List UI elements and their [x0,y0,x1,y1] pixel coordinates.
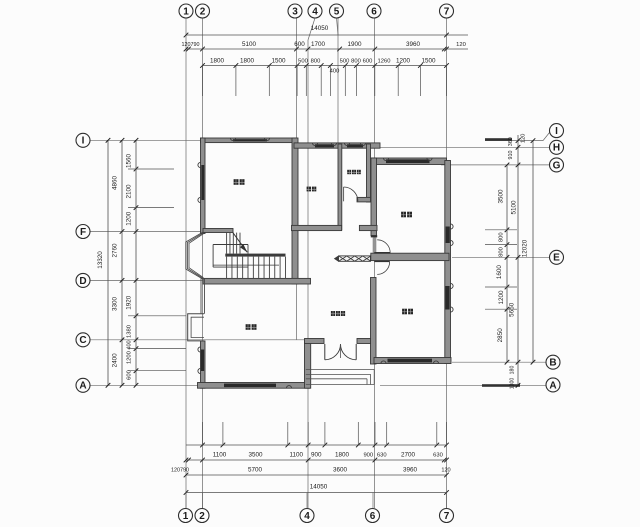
svg-text:14050: 14050 [311,25,329,32]
svg-text:800: 800 [311,59,321,65]
svg-text:3500: 3500 [498,189,505,204]
svg-text:5: 5 [334,6,340,17]
svg-text:4: 4 [312,6,318,17]
svg-text:400: 400 [127,340,133,349]
svg-text:600: 600 [294,41,305,48]
svg-text:1260: 1260 [378,59,391,65]
svg-text:4: 4 [304,511,310,522]
svg-text:1200: 1200 [127,351,133,364]
svg-text:600: 600 [363,59,373,65]
svg-text:180: 180 [510,366,516,375]
svg-text:3500: 3500 [248,452,263,459]
svg-text:600: 600 [127,370,133,380]
svg-text:1100: 1100 [213,452,227,459]
svg-text:6: 6 [371,6,377,17]
svg-text:7: 7 [444,6,450,17]
svg-text:5100: 5100 [511,200,518,215]
svg-text:A: A [79,381,86,392]
svg-text:1920: 1920 [126,295,133,310]
svg-text:E: E [553,253,560,264]
svg-text:1800: 1800 [240,58,255,65]
svg-text:120: 120 [456,42,466,48]
svg-text:1200: 1200 [498,290,505,305]
svg-text:630: 630 [433,453,443,459]
svg-text:2100: 2100 [126,184,133,199]
svg-text:2: 2 [200,6,206,17]
svg-text:1800: 1800 [335,452,350,459]
svg-text:360: 360 [508,137,514,146]
svg-text:1560: 1560 [126,154,133,169]
svg-text:5650: 5650 [509,302,516,317]
svg-text:6: 6 [370,511,376,522]
svg-text:500: 500 [340,59,350,65]
svg-text:I: I [82,136,85,147]
svg-text:2760: 2760 [112,243,119,258]
svg-text:2850: 2850 [497,328,504,343]
svg-text:1900: 1900 [347,41,362,48]
svg-text:120: 120 [441,468,450,474]
svg-text:4860: 4860 [112,176,119,191]
svg-text:3960: 3960 [403,467,418,474]
svg-text:1700: 1700 [311,41,326,48]
svg-text:500: 500 [298,59,308,65]
svg-text:900: 900 [311,452,322,459]
svg-text:120790: 120790 [182,42,200,48]
svg-text:C: C [79,335,86,346]
svg-text:1600: 1600 [496,265,503,280]
svg-text:3600: 3600 [333,467,348,474]
svg-text:1500: 1500 [421,58,436,65]
svg-text:3960: 3960 [406,41,421,48]
svg-text:800: 800 [499,247,505,257]
svg-text:630: 630 [377,453,387,459]
svg-text:800: 800 [499,232,505,242]
svg-text:2700: 2700 [401,452,416,459]
svg-text:5100: 5100 [242,41,257,48]
svg-text:400: 400 [330,69,340,75]
svg-text:3300: 3300 [112,297,119,312]
svg-text:1300: 1300 [510,378,516,390]
svg-text:D: D [79,276,86,287]
svg-text:7: 7 [444,511,450,522]
svg-text:1800: 1800 [210,58,225,65]
svg-text:910: 910 [508,151,514,160]
svg-text:2: 2 [199,511,205,522]
svg-text:1500: 1500 [271,58,286,65]
svg-text:1380: 1380 [127,325,133,338]
svg-text:120: 120 [521,134,527,143]
svg-text:B: B [549,358,556,369]
svg-text:A: A [549,380,556,391]
svg-text:900: 900 [363,453,373,459]
svg-text:G: G [553,160,561,171]
svg-text:5700: 5700 [248,467,263,474]
svg-text:1200: 1200 [126,211,133,226]
svg-text:I: I [555,126,558,137]
svg-text:2400: 2400 [112,353,119,368]
svg-text:1200: 1200 [396,58,411,65]
svg-text:1100: 1100 [290,452,304,459]
svg-text:14050: 14050 [310,484,328,491]
svg-text:1: 1 [183,6,189,17]
svg-text:800: 800 [351,59,361,65]
svg-text:3: 3 [292,6,298,17]
svg-text:F: F [80,227,86,238]
svg-text:1: 1 [183,511,189,522]
svg-text:H: H [553,143,560,154]
svg-text:13320: 13320 [97,251,104,269]
svg-text:120790: 120790 [171,468,189,474]
svg-text:12020: 12020 [522,239,529,257]
